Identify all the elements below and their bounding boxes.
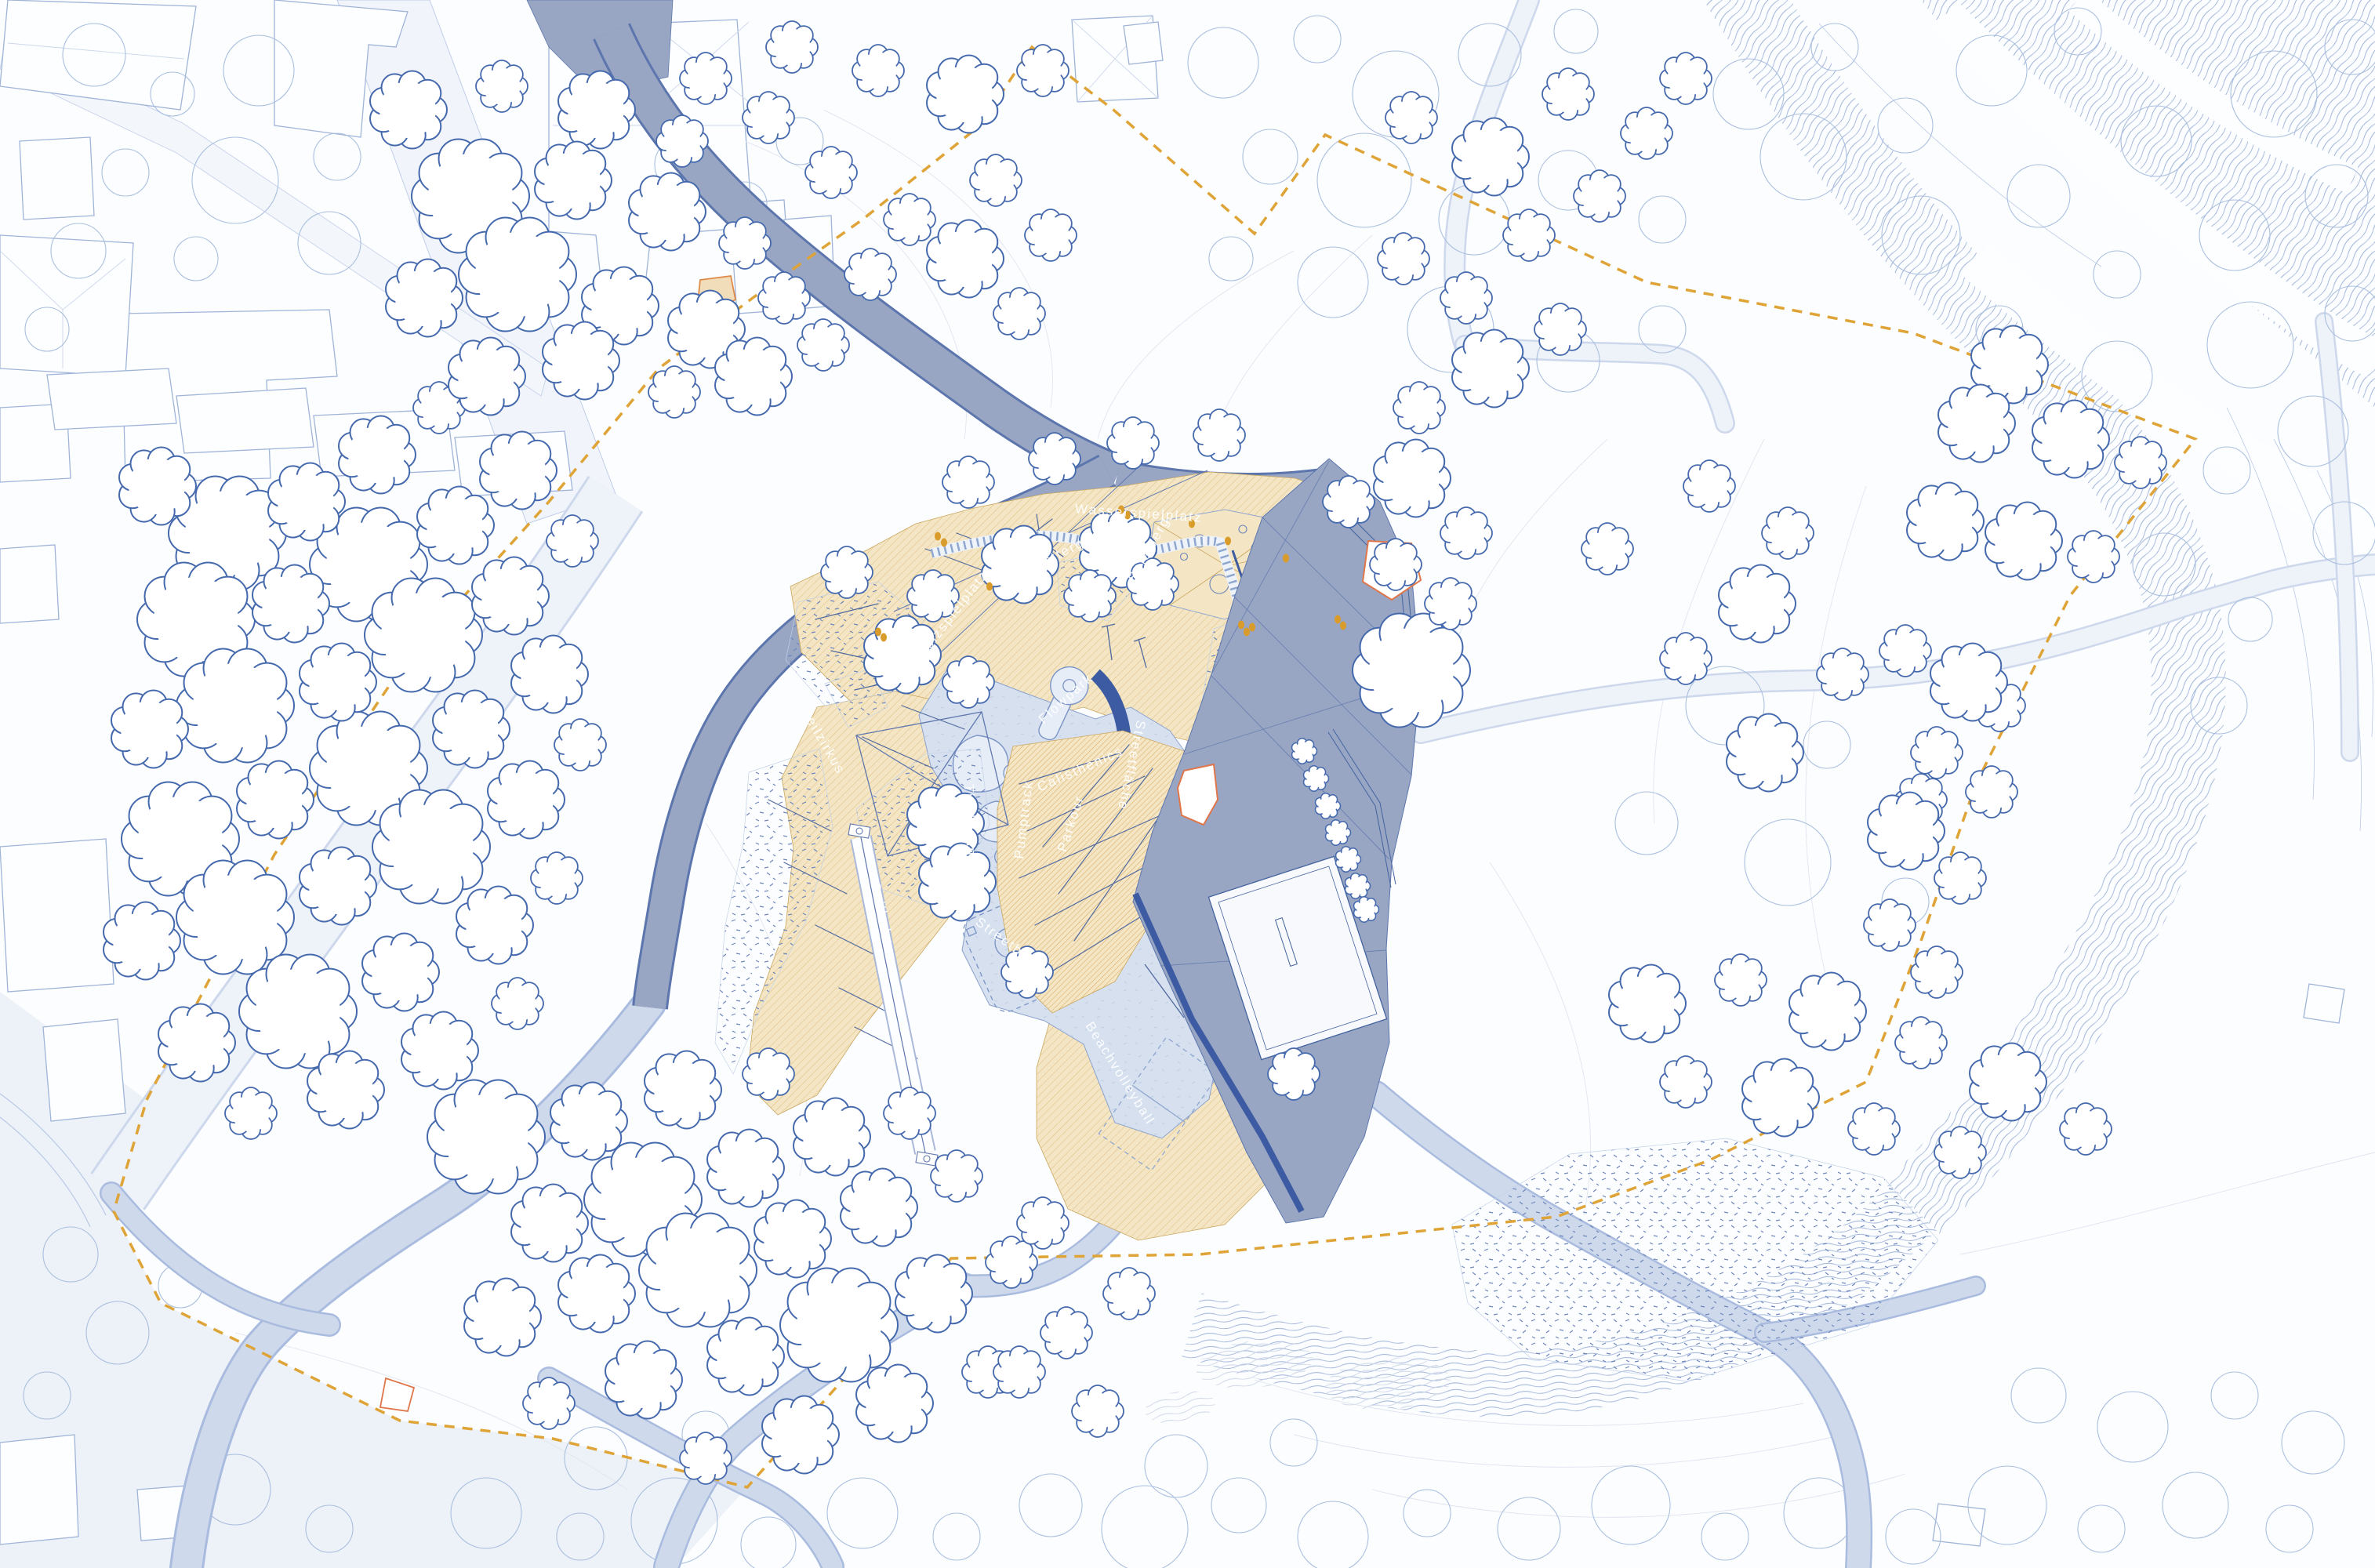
site-plan-drawing: Wasserspielplatz Spielberg Klettergerüst…: [0, 0, 2375, 1568]
label-tischtennis: Tischtennis: [961, 784, 979, 870]
site-plan: Wasserspielplatz Spielberg Klettergerüst…: [0, 0, 2375, 1568]
